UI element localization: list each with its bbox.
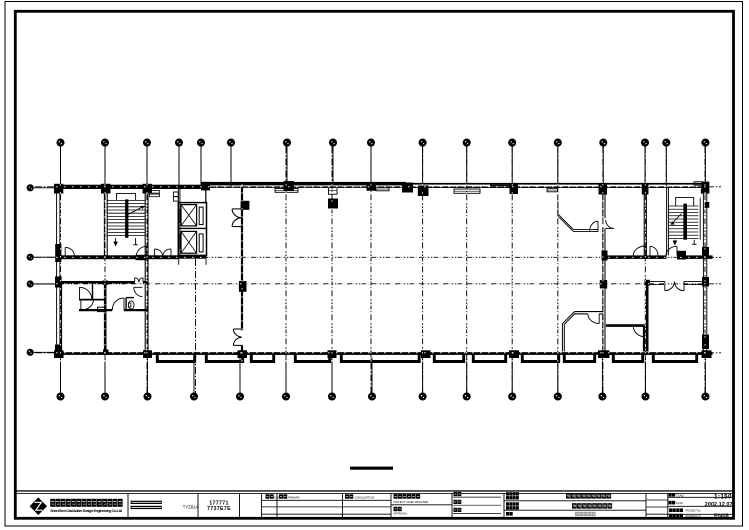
svg-text:2002.12.07: 2002.12.07 (705, 502, 733, 508)
svg-text:CONSULTATION: CONSULTATION (355, 496, 375, 500)
svg-text:APPROVAL: APPROVAL (394, 511, 408, 515)
svg-text:SCALE: SCALE (676, 494, 684, 497)
svg-text:PN08: PN08 (714, 514, 729, 520)
svg-text:ShenZhen Casi Adore Design Eng: ShenZhen Casi Adore Design Engineering C… (50, 508, 123, 513)
svg-text:PROJECT CHIEF DESIGNER: PROJECT CHIEF DESIGNER (394, 500, 429, 504)
svg-text:1:150: 1:150 (714, 493, 732, 500)
svg-text:DATE: DATE (676, 502, 683, 505)
svg-text:DRAWING No.: DRAWING No. (686, 515, 702, 518)
svg-text:REMARK: REMARK (289, 496, 300, 500)
svg-text:TYZB14: TYZB14 (183, 504, 199, 509)
svg-text:7737E7E: 7737E7E (207, 506, 231, 512)
svg-text:PROJECT No.: PROJECT No. (686, 510, 702, 513)
